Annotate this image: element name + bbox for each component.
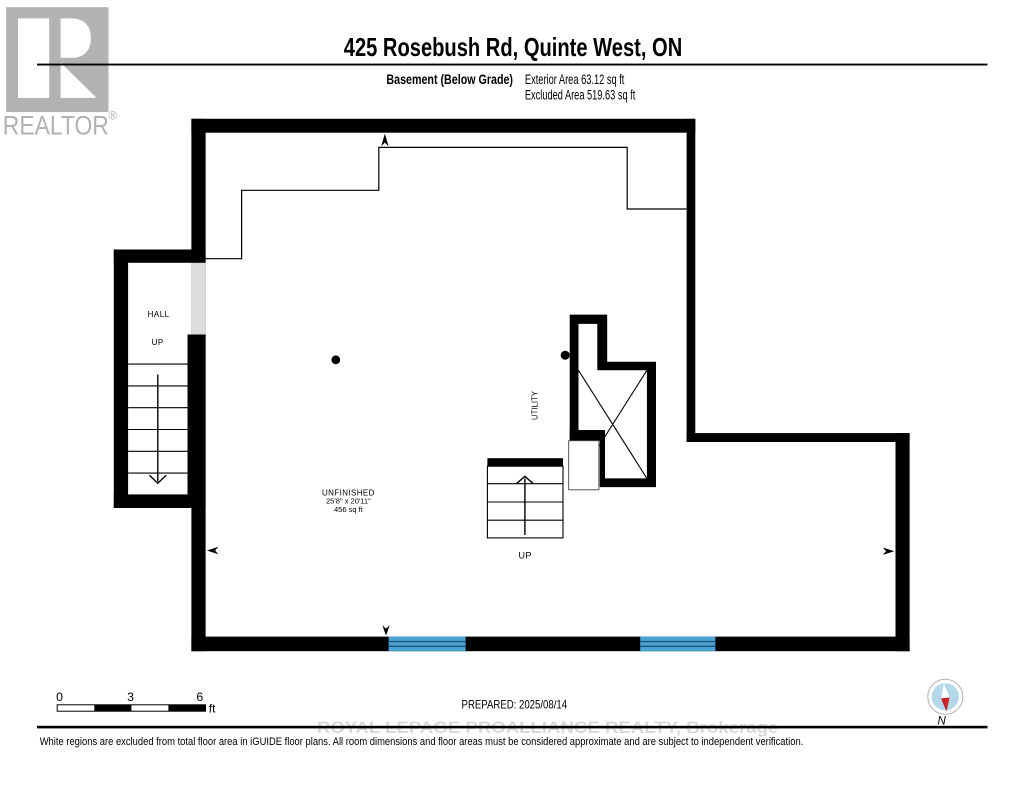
svg-text:PREPARED: 2025/08/14: PREPARED: 2025/08/14	[462, 698, 568, 712]
svg-text:®: ®	[109, 109, 118, 123]
svg-text:UTILITY: UTILITY	[530, 390, 539, 420]
svg-text:HALL: HALL	[148, 310, 170, 319]
svg-text:Excluded Area 519.63 sq ft: Excluded Area 519.63 sq ft	[525, 87, 636, 102]
svg-text:Basement (Below Grade): Basement (Below Grade)	[386, 72, 513, 87]
svg-text:N: N	[938, 716, 947, 728]
svg-text:6: 6	[196, 690, 203, 704]
svg-text:3: 3	[127, 690, 134, 704]
svg-text:UP: UP	[152, 338, 164, 347]
svg-text:REALTOR: REALTOR	[3, 111, 109, 141]
svg-text:ft: ft	[209, 702, 216, 716]
svg-text:White regions are excluded fro: White regions are excluded from total fl…	[40, 736, 804, 748]
svg-text:425 Rosebush Rd, Quinte West,: 425 Rosebush Rd, Quinte West, ON	[344, 32, 683, 62]
svg-text:UP: UP	[518, 551, 532, 561]
svg-text:Exterior Area 63.12 sq ft: Exterior Area 63.12 sq ft	[525, 72, 625, 87]
svg-text:456 sq ft: 456 sq ft	[334, 505, 364, 514]
svg-text:0: 0	[56, 690, 63, 704]
